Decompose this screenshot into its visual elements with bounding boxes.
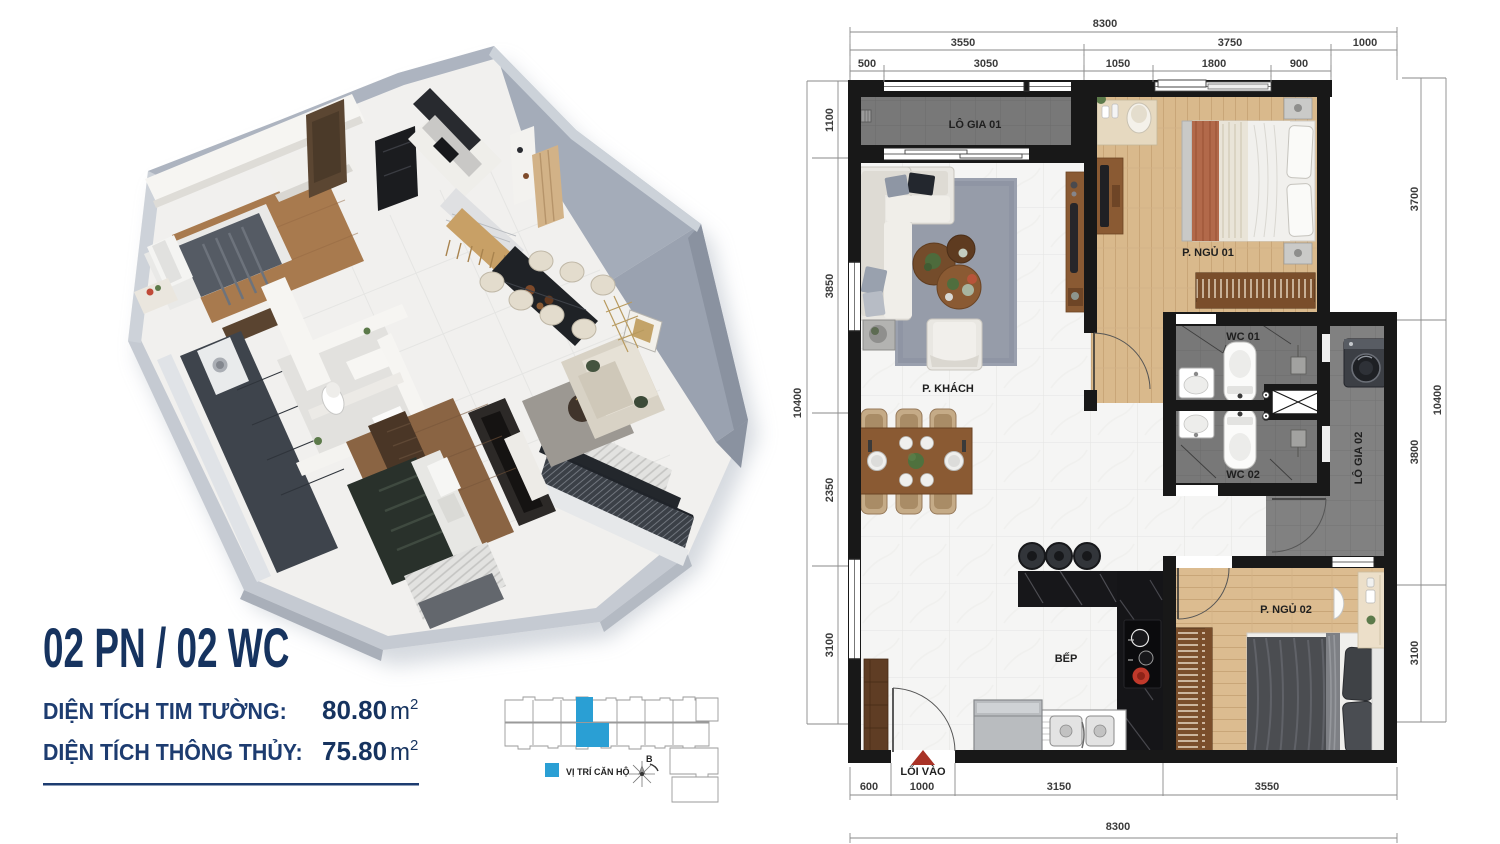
svg-text:P. NGỦ 02: P. NGỦ 02 — [1260, 603, 1312, 616]
svg-text:2: 2 — [410, 737, 418, 754]
svg-text:m: m — [390, 698, 410, 725]
svg-text:3100: 3100 — [824, 633, 836, 657]
svg-text:DIỆN TÍCH THÔNG THỦY:: DIỆN TÍCH THÔNG THỦY: — [43, 739, 303, 765]
svg-text:1800: 1800 — [1202, 58, 1226, 70]
svg-text:3150: 3150 — [1047, 781, 1071, 793]
svg-text:3750: 3750 — [1218, 37, 1242, 49]
svg-text:B: B — [646, 754, 653, 764]
svg-text:3100: 3100 — [1409, 641, 1421, 665]
svg-text:2350: 2350 — [824, 478, 836, 502]
svg-text:1100: 1100 — [824, 108, 836, 132]
svg-text:3550: 3550 — [951, 37, 975, 49]
svg-text:WC 02: WC 02 — [1226, 469, 1260, 481]
svg-text:LÔ GIA 02: LÔ GIA 02 — [1352, 432, 1365, 485]
svg-text:VỊ TRÍ CĂN HỘ: VỊ TRÍ CĂN HỘ — [566, 766, 630, 777]
svg-text:3800: 3800 — [1409, 440, 1421, 464]
svg-text:P. NGỦ 01: P. NGỦ 01 — [1182, 246, 1234, 259]
svg-text:3550: 3550 — [1255, 781, 1279, 793]
svg-text:1050: 1050 — [1106, 58, 1130, 70]
svg-text:02 PN / 02 WC: 02 PN / 02 WC — [43, 617, 289, 680]
svg-text:1000: 1000 — [910, 781, 934, 793]
svg-text:3700: 3700 — [1409, 187, 1421, 211]
svg-text:P. KHÁCH: P. KHÁCH — [922, 382, 974, 395]
svg-text:80.80: 80.80 — [322, 695, 387, 725]
svg-text:BẾP: BẾP — [1055, 652, 1078, 665]
svg-text:10400: 10400 — [1432, 385, 1444, 416]
svg-text:500: 500 — [858, 58, 876, 70]
svg-text:75.80: 75.80 — [322, 736, 387, 766]
svg-text:2: 2 — [410, 696, 418, 713]
svg-text:8300: 8300 — [1106, 821, 1130, 833]
svg-text:DIỆN TÍCH TIM TƯỜNG:: DIỆN TÍCH TIM TƯỜNG: — [43, 698, 287, 724]
svg-text:1000: 1000 — [1353, 37, 1377, 49]
svg-text:10400: 10400 — [792, 388, 804, 419]
svg-text:8300: 8300 — [1093, 18, 1117, 30]
svg-text:3050: 3050 — [974, 58, 998, 70]
svg-text:WC 01: WC 01 — [1226, 331, 1260, 343]
svg-text:3850: 3850 — [824, 274, 836, 298]
svg-text:LỐI VÀO: LỐI VÀO — [900, 764, 946, 778]
svg-text:m: m — [390, 739, 410, 766]
svg-text:LÔ GIA 01: LÔ GIA 01 — [949, 118, 1002, 131]
svg-text:900: 900 — [1290, 58, 1308, 70]
svg-text:600: 600 — [860, 781, 878, 793]
